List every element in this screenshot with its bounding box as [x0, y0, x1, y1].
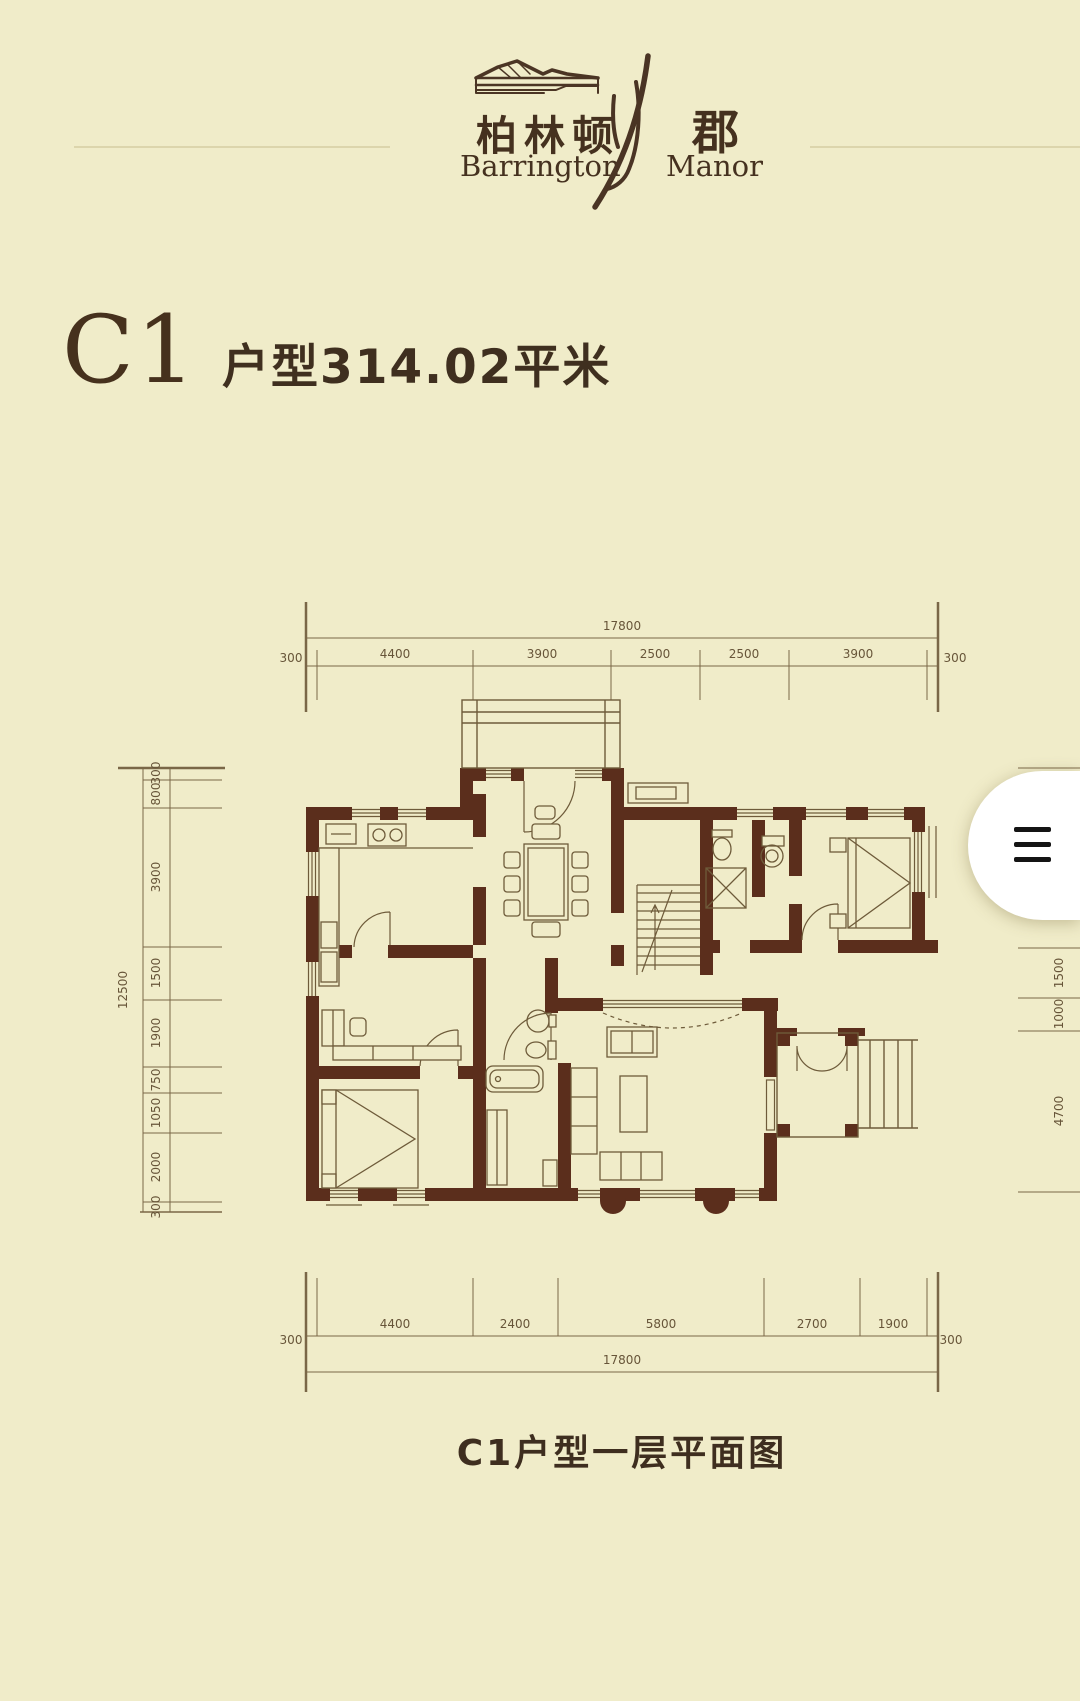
dim-label: 300 — [940, 1333, 963, 1347]
dim-label: 2000 — [149, 1152, 163, 1183]
dim-label: 1900 — [149, 1018, 163, 1049]
dim-label: 17800 — [603, 1353, 641, 1367]
dim-label: 300 — [944, 651, 967, 665]
curtain-dashed-arc — [603, 1013, 742, 1028]
dim-label: 4400 — [380, 1317, 411, 1331]
entry-bench — [628, 783, 688, 803]
dim-label: 300 — [280, 1333, 303, 1347]
dimension-labels: 17800 300 4400 3900 2500 2500 3900 300 1… — [116, 619, 1066, 1367]
porch-door-leaf — [767, 1080, 775, 1130]
bathroom-center — [486, 1010, 556, 1092]
dim-label: 2500 — [729, 647, 760, 661]
dim-label: 800 — [149, 783, 163, 806]
stairs — [637, 885, 700, 975]
dim-label: 300 — [149, 1196, 163, 1219]
manor-logo-icon — [476, 61, 598, 93]
closet-wardrobe — [487, 1110, 557, 1186]
dim-label: 3900 — [843, 647, 874, 661]
entry-porch — [462, 700, 620, 768]
bed-top-right — [830, 838, 910, 928]
dimension-lines — [118, 602, 1080, 1392]
kitchen-counter — [319, 824, 473, 986]
living-room-furniture — [571, 1027, 662, 1180]
dim-label: 1500 — [1052, 958, 1066, 989]
dim-label: 3900 — [149, 862, 163, 893]
dim-label: 4700 — [1052, 1096, 1066, 1127]
dim-label: 5800 — [646, 1317, 677, 1331]
dim-label: 2700 — [797, 1317, 828, 1331]
floor-plan-svg: 17800 300 4400 3900 2500 2500 3900 300 1… — [0, 0, 1080, 1701]
dim-label: 1000 — [1052, 999, 1066, 1030]
dim-label: 4400 — [380, 647, 411, 661]
dim-label: 750 — [149, 1069, 163, 1092]
dining-table — [504, 806, 588, 937]
dim-label: 12500 — [116, 971, 130, 1009]
side-porch — [777, 1033, 858, 1137]
bed-bottom-left — [322, 1090, 418, 1188]
dim-label: 300 — [149, 762, 163, 785]
dim-label: 300 — [280, 651, 303, 665]
page: { "logo": { "cn_main": "柏林顿", "cn_suffix… — [0, 0, 1080, 1701]
dim-label: 3900 — [527, 647, 558, 661]
dim-label: 1900 — [878, 1317, 909, 1331]
dim-label: 2400 — [500, 1317, 531, 1331]
dim-label: 2500 — [640, 647, 671, 661]
study-door-arc — [354, 912, 390, 947]
dim-label: 1500 — [149, 958, 163, 989]
dim-label: 1050 — [149, 1098, 163, 1129]
logo-calligraphy-stroke — [595, 56, 648, 207]
dim-label: 17800 — [603, 619, 641, 633]
